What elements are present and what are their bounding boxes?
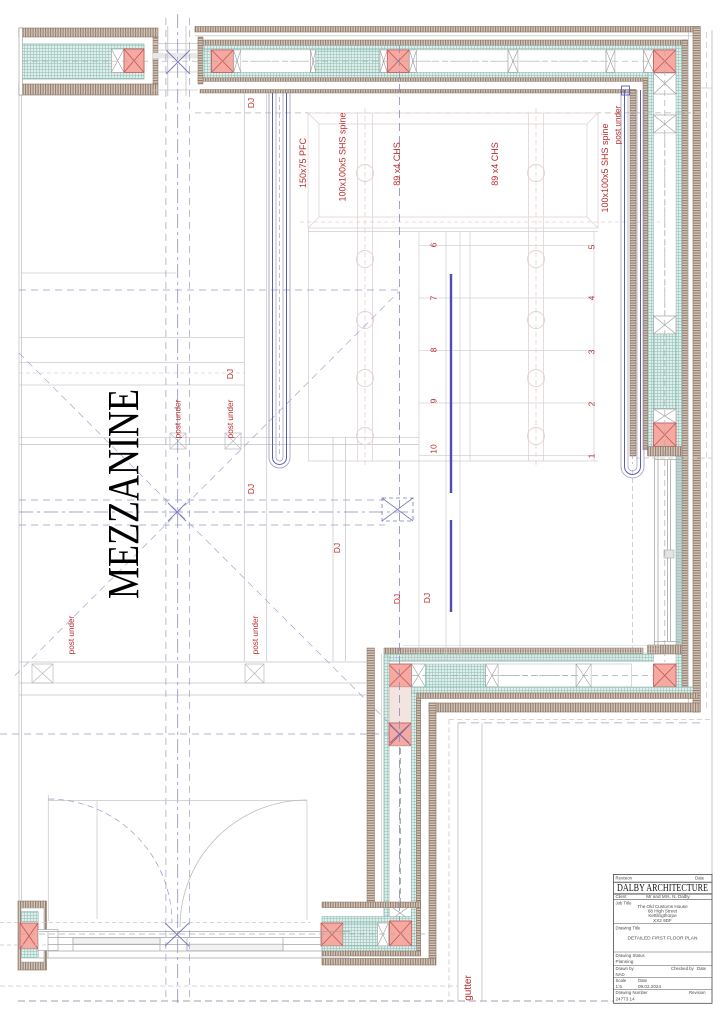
svg-text:Drawing Status: Drawing Status xyxy=(616,953,645,958)
svg-text:Date: Date xyxy=(638,978,648,983)
svg-text:post under: post under xyxy=(67,615,76,654)
svg-text:100x100x5 SHS spine: 100x100x5 SHS spine xyxy=(600,123,610,212)
svg-text:post under: post under xyxy=(226,399,235,438)
svg-text:2: 2 xyxy=(587,401,597,406)
svg-text:1:5: 1:5 xyxy=(616,984,623,989)
svg-text:Checked by: Checked by xyxy=(671,966,695,971)
svg-text:Date: Date xyxy=(697,966,707,971)
svg-text:Date: Date xyxy=(695,876,705,881)
svg-text:5: 5 xyxy=(587,244,597,249)
svg-text:DJ: DJ xyxy=(246,98,256,108)
svg-text:DETAILED FIRST FLOOR PLAN: DETAILED FIRST FLOOR PLAN xyxy=(628,936,698,942)
svg-text:post under: post under xyxy=(174,399,183,438)
svg-text:Mr and Mrs. N. Dalby: Mr and Mrs. N. Dalby xyxy=(646,894,690,899)
svg-text:1: 1 xyxy=(587,453,597,458)
svg-text:Job Title: Job Title xyxy=(616,901,633,906)
svg-text:Scale: Scale xyxy=(616,978,627,983)
svg-text:Drawn by: Drawn by xyxy=(616,966,635,971)
svg-text:Revision: Revision xyxy=(689,990,706,995)
svg-text:post under: post under xyxy=(251,615,260,654)
svg-text:150x75 PFC: 150x75 PFC xyxy=(298,137,308,188)
svg-text:89 x4 CHS: 89 x4 CHS xyxy=(392,142,402,186)
svg-text:24773 14: 24773 14 xyxy=(616,997,636,1002)
svg-text:6: 6 xyxy=(429,242,439,247)
svg-text:Drawing Title: Drawing Title xyxy=(616,926,641,931)
svg-text:4: 4 xyxy=(587,295,597,300)
svg-text:Planning: Planning xyxy=(616,959,634,964)
svg-text:3: 3 xyxy=(587,349,597,354)
svg-text:post under: post under xyxy=(614,105,623,144)
svg-text:10: 10 xyxy=(429,444,439,454)
svg-text:9: 9 xyxy=(429,398,439,403)
svg-text:DJ: DJ xyxy=(422,593,432,603)
svg-text:DJ: DJ xyxy=(246,484,256,494)
svg-text:Client: Client xyxy=(616,894,628,899)
svg-text:Revision: Revision xyxy=(616,876,633,881)
svg-text:MEZZANINE: MEZZANINE xyxy=(99,389,148,599)
svg-text:DJ: DJ xyxy=(392,594,402,604)
svg-text:Drawing Number: Drawing Number xyxy=(616,990,649,995)
svg-text:DALBY ARCHITECTURE: DALBY ARCHITECTURE xyxy=(617,883,708,894)
svg-text:DJ: DJ xyxy=(225,369,235,379)
svg-text:89 x4 CHS: 89 x4 CHS xyxy=(490,142,500,186)
svg-text:7: 7 xyxy=(429,295,439,300)
svg-text:100x100x5 SHS spine: 100x100x5 SHS spine xyxy=(338,112,348,201)
svg-text:DJ: DJ xyxy=(332,543,342,553)
svg-text:NAD: NAD xyxy=(616,972,625,977)
svg-text:XX2 9DF: XX2 9DF xyxy=(653,918,672,923)
svg-text:09.02.2024: 09.02.2024 xyxy=(638,984,661,989)
svg-text:gutter: gutter xyxy=(463,975,474,1001)
svg-text:8: 8 xyxy=(429,347,439,352)
